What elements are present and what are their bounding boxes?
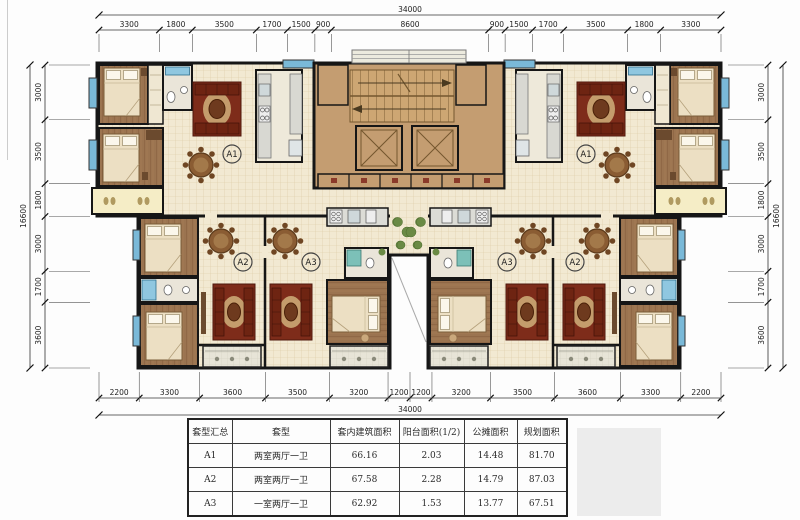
dim-label: 3300 (160, 388, 179, 397)
dim-label: 3200 (349, 388, 368, 397)
light-well (392, 258, 426, 342)
col-header: 套内建筑面积 (330, 419, 399, 444)
dim-label: 3500 (757, 142, 766, 161)
unit-label-text: A3 (501, 258, 512, 268)
dim-label: 1800 (635, 20, 654, 29)
tv-cabinet (201, 292, 206, 334)
unit-label-text: A1 (580, 150, 591, 160)
dim-label: 2200 (110, 388, 129, 397)
dim-total-left: 16600 (19, 204, 28, 228)
dim-label: 8600 (400, 20, 419, 29)
dim-label: 3500 (288, 388, 307, 397)
dim-label: 3500 (34, 142, 43, 161)
toilet (167, 92, 175, 103)
dim-label: 2200 (691, 388, 710, 397)
elevator-shaft (412, 126, 458, 170)
fridge (289, 140, 302, 156)
col-header: 套型 (232, 419, 330, 444)
drawing-sheet: A1 A1 A2 A2 A3 A3 34000 34000 16600 1660… (0, 0, 800, 520)
dim-label: 900 (490, 20, 505, 29)
cell: 14.48 (464, 444, 517, 468)
unit-label-text: A2 (569, 258, 580, 268)
dim-label: 3000 (34, 234, 43, 253)
dim-label: 3600 (578, 388, 597, 397)
entrance-steps (352, 50, 466, 63)
dim-label: 1700 (262, 20, 281, 29)
cell: 66.16 (330, 444, 399, 468)
table-row: A2 两室两厅一卫 67.58 2.28 14.79 87.03 (188, 468, 567, 492)
cell: 2.28 (399, 468, 464, 492)
cell: 81.70 (517, 444, 567, 468)
table-side-panel (577, 428, 661, 516)
table-row: A1 两室两厅一卫 66.16 2.03 14.48 81.70 (188, 444, 567, 468)
sink (181, 87, 188, 94)
col-header: 公摊面积 (464, 419, 517, 444)
dim-label: 1800 (34, 190, 43, 209)
dim-label: 3300 (641, 388, 660, 397)
dim-label: 3000 (757, 83, 766, 102)
col-header: 阳台面积(1/2) (399, 419, 464, 444)
cell: 1.53 (399, 492, 464, 517)
cell: 62.92 (330, 492, 399, 517)
cell: A3 (188, 492, 232, 517)
cell: 一室两厅一卫 (232, 492, 330, 517)
dim-label: 3000 (34, 83, 43, 102)
cell: 87.03 (517, 468, 567, 492)
plant (379, 249, 386, 256)
wardrobe (146, 130, 162, 140)
dim-label: 1800 (757, 190, 766, 209)
unit-label-text: A3 (305, 258, 316, 268)
elevator-shaft (356, 126, 402, 170)
dim-total-top: 34000 (398, 5, 422, 14)
corner-balcony (92, 188, 163, 214)
cell: 两室两厅一卫 (232, 468, 330, 492)
dim-label: 3600 (34, 325, 43, 344)
dim-label: 1500 (509, 20, 528, 29)
dim-label: 1700 (34, 277, 43, 296)
unit-area-table: 套型汇总 套型 套内建筑面积 阳台面积(1/2) 公摊面积 规划面积 A1 两室… (187, 418, 568, 517)
dim-label: 3000 (757, 234, 766, 253)
dim-label: 1200 (411, 388, 430, 397)
stair-elevator-core (314, 50, 504, 188)
dim-label: 3500 (513, 388, 532, 397)
dim-label: 3600 (223, 388, 242, 397)
cell: A2 (188, 468, 232, 492)
window (283, 60, 314, 68)
shower (347, 250, 361, 266)
dim-label: 1700 (757, 277, 766, 296)
bay-window (133, 230, 140, 260)
dim-label: 3300 (681, 20, 700, 29)
bay-window (89, 78, 97, 108)
cell: 14.79 (464, 468, 517, 492)
dim-label: 3500 (586, 20, 605, 29)
dim-label: 3200 (452, 388, 471, 397)
cell: 2.03 (399, 444, 464, 468)
cell: 67.58 (330, 468, 399, 492)
col-header: 套型汇总 (188, 419, 232, 444)
cell: 13.77 (464, 492, 517, 517)
cell: 两室两厅一卫 (232, 444, 330, 468)
dim-label: 3300 (120, 20, 139, 29)
col-header: 规划面积 (517, 419, 567, 444)
dim-total-bottom: 34000 (398, 405, 422, 414)
unit-label-text: A1 (226, 150, 237, 160)
dim-label: 3500 (215, 20, 234, 29)
table-row: A3 一室两厅一卫 62.92 1.53 13.77 67.51 (188, 492, 567, 517)
bathtub (166, 67, 190, 75)
bay-window (89, 140, 97, 170)
dim-total-right: 16600 (772, 204, 781, 228)
bay-window (133, 316, 140, 346)
cell: 67.51 (517, 492, 567, 517)
dim-label: 900 (316, 20, 331, 29)
closet (148, 65, 163, 124)
unit-label-text: A2 (237, 258, 248, 268)
dim-label: 3600 (757, 325, 766, 344)
dim-label: 1500 (292, 20, 311, 29)
cell: A1 (188, 444, 232, 468)
dim-label: 1200 (389, 388, 408, 397)
dim-label: 1800 (166, 20, 185, 29)
table-header-row: 套型汇总 套型 套内建筑面积 阳台面积(1/2) 公摊面积 规划面积 (188, 419, 567, 444)
dim-label: 1700 (539, 20, 558, 29)
bathtub (142, 280, 156, 300)
